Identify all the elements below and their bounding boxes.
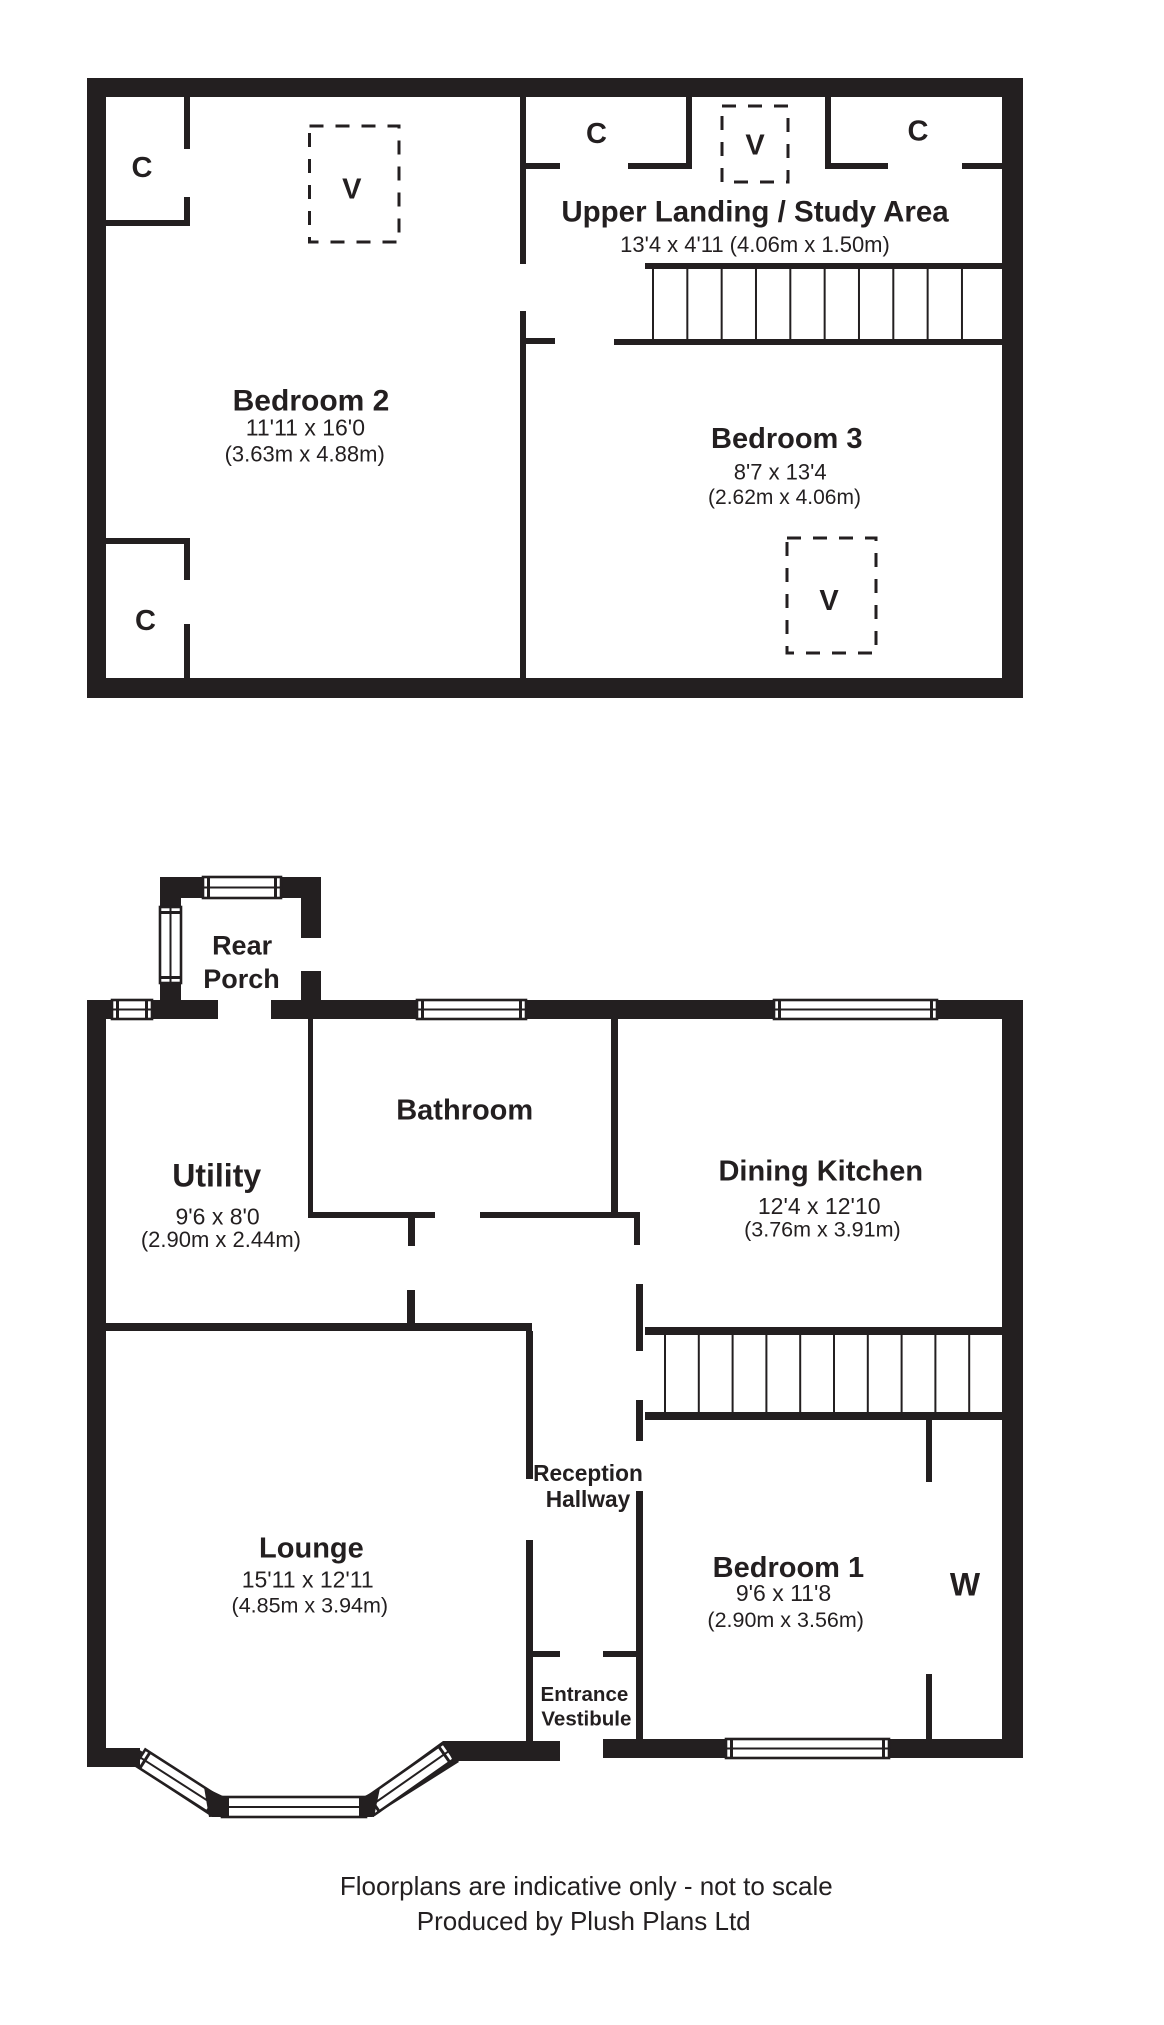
svg-text:W: W <box>950 1567 981 1603</box>
svg-text:Lounge: Lounge <box>259 1533 364 1565</box>
svg-text:Upper Landing / Study Area: Upper Landing / Study Area <box>561 196 949 229</box>
svg-text:Bedroom 3: Bedroom 3 <box>711 423 862 455</box>
svg-text:(2.90m x 3.56m): (2.90m x 3.56m) <box>707 1608 864 1632</box>
svg-text:8'7 x 13'4: 8'7 x 13'4 <box>734 460 827 485</box>
svg-text:C: C <box>586 118 607 150</box>
svg-text:C: C <box>135 605 156 637</box>
svg-text:11'11 x 16'0: 11'11 x 16'0 <box>246 415 365 441</box>
svg-text:(2.62m x 4.06m): (2.62m x 4.06m) <box>708 486 861 509</box>
svg-text:9'6 x 11'8: 9'6 x 11'8 <box>736 1580 831 1606</box>
svg-text:Bathroom: Bathroom <box>396 1095 533 1127</box>
svg-text:Bedroom 2: Bedroom 2 <box>233 385 390 418</box>
svg-text:V: V <box>342 173 362 205</box>
svg-text:V: V <box>745 130 765 162</box>
svg-text:(3.63m x 4.88m): (3.63m x 4.88m) <box>225 441 385 466</box>
svg-text:C: C <box>132 152 153 184</box>
svg-text:(2.90m x 2.44m): (2.90m x 2.44m) <box>141 1227 301 1252</box>
svg-text:C: C <box>908 115 929 147</box>
svg-text:Rear: Rear <box>212 930 273 960</box>
svg-text:Utility: Utility <box>172 1158 261 1194</box>
svg-text:Floorplans are indicative only: Floorplans are indicative only - not to … <box>340 1871 833 1901</box>
svg-text:13'4 x 4'11 (4.06m x 1.50m): 13'4 x 4'11 (4.06m x 1.50m) <box>620 232 890 257</box>
svg-text:(4.85m x 3.94m): (4.85m x 3.94m) <box>232 1593 389 1617</box>
svg-text:Vestibule: Vestibule <box>541 1707 631 1730</box>
svg-text:Reception: Reception <box>533 1460 643 1486</box>
svg-text:Dining Kitchen: Dining Kitchen <box>718 1156 923 1188</box>
svg-text:Entrance: Entrance <box>541 1683 629 1706</box>
svg-text:V: V <box>819 585 839 617</box>
svg-text:Produced by Plush Plans Ltd: Produced by Plush Plans Ltd <box>417 1906 751 1936</box>
svg-text:12'4 x 12'10: 12'4 x 12'10 <box>758 1193 881 1219</box>
svg-text:(3.76m x 3.91m): (3.76m x 3.91m) <box>744 1218 901 1242</box>
svg-text:15'11 x 12'11: 15'11 x 12'11 <box>242 1567 374 1593</box>
svg-text:Hallway: Hallway <box>546 1486 631 1512</box>
svg-text:Porch: Porch <box>203 964 280 994</box>
svg-text:9'6 x 8'0: 9'6 x 8'0 <box>175 1203 259 1229</box>
